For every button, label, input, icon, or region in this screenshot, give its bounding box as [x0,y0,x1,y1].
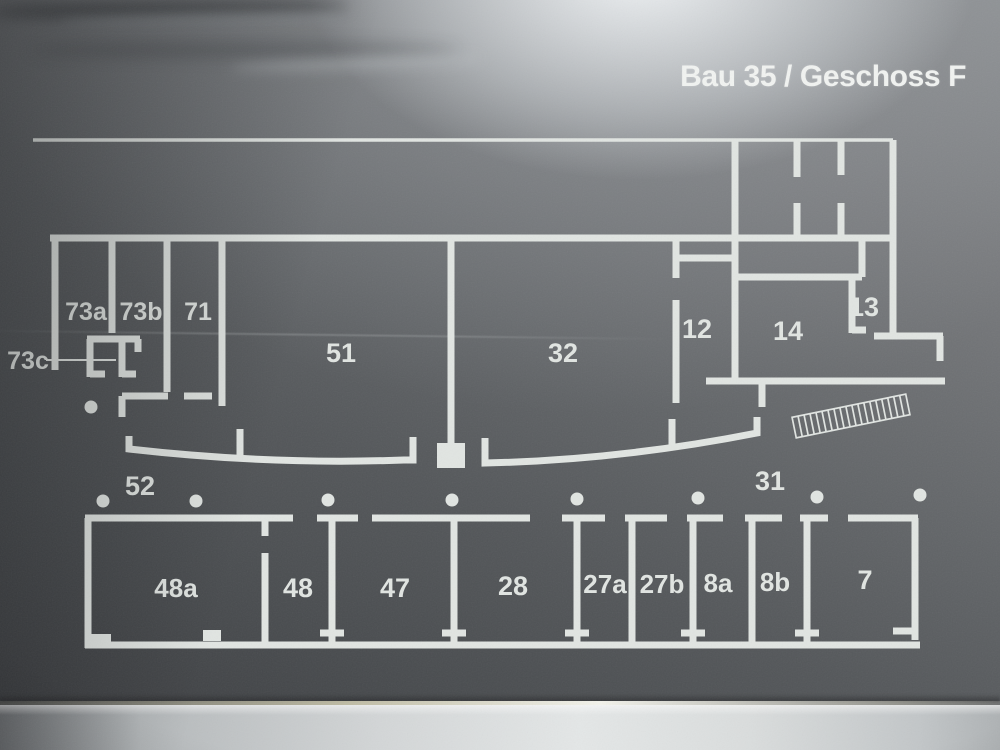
room-label-27b: 27b [640,569,685,599]
corridor-dot [811,491,824,504]
room-label-48a: 48a [154,573,198,603]
floorplan-sign-photo: 73c73a73b715132121413523148a48472827a27b… [0,0,1000,750]
floorplan-svg: 73c73a73b715132121413523148a48472827a27b… [0,0,1000,750]
room-label-71: 71 [184,298,212,326]
wall-strip-below-sign [0,705,1000,750]
corridor-dot [571,493,584,506]
photo-vignette [0,0,1000,750]
room-label-51: 51 [326,338,356,368]
room-label-52: 52 [125,471,155,501]
stairs-ramp-hatch [822,411,826,432]
room-label-12: 12 [682,314,712,344]
room-label-32: 32 [548,338,578,368]
stairs-ramp-hatch [840,408,844,429]
stairs-ramp-hatch [888,398,892,419]
sign-title: Bau 35 / Geschoss F [680,60,966,94]
room-label-73b: 73b [119,298,162,326]
photo-light-streak [60,12,340,26]
photo-light-streak [230,54,480,74]
room-label-8a: 8a [704,568,733,598]
corridor-dot [692,492,705,505]
stairs-ramp-hatch [900,395,904,416]
room-label-31: 31 [755,466,785,496]
stairs-ramp-hatch [870,401,874,422]
sign-scratch-line [0,330,665,340]
stairs-ramp-hatch [852,405,856,426]
stairs-ramp-hatch [858,404,862,425]
stairs-ramp-icon [792,394,910,438]
corridor-edge [485,417,757,463]
door-marker-48a [203,630,221,641]
room-label-48: 48 [283,573,313,603]
room-label-27a: 27a [583,569,627,599]
stairs-ramp-outline [792,394,910,438]
stairs-ramp-hatch [876,400,880,421]
corridor-dot [446,494,459,507]
corridor-dot [190,495,203,508]
stairs-ramp-hatch [816,412,820,433]
corridor-dot [85,401,98,414]
corner-block [85,634,111,647]
stairs-ramp-hatch [864,403,868,424]
corridor-dot [97,495,110,508]
corridor-edge [129,436,413,461]
stairs-ramp-hatch [810,414,814,435]
stairs-ramp-hatch [846,406,850,427]
stairs-ramp-hatch [798,416,802,437]
stairs-ramp-hatch [834,409,838,430]
photo-dark-streak [30,44,460,56]
photo-dark-streak [0,0,350,21]
room-label-8b: 8b [760,567,790,597]
photo-grain-texture [0,0,1000,750]
corridor-dot [322,494,335,507]
stairs-ramp-hatch [894,397,898,418]
room-label-14: 14 [773,316,803,346]
corridor-dot [914,489,927,502]
room-label-73c: 73c [7,347,49,375]
stairs-ramp-hatch [804,415,808,436]
room-label-47: 47 [380,573,410,603]
center-pillar-marker [437,443,465,468]
room-label-13: 13 [849,292,879,322]
stairs-ramp-hatch [882,399,886,420]
stairs-ramp-hatch [828,410,832,431]
room-label-28: 28 [498,571,528,601]
room-label-7: 7 [857,565,872,595]
room-label-73a: 73a [65,298,108,326]
